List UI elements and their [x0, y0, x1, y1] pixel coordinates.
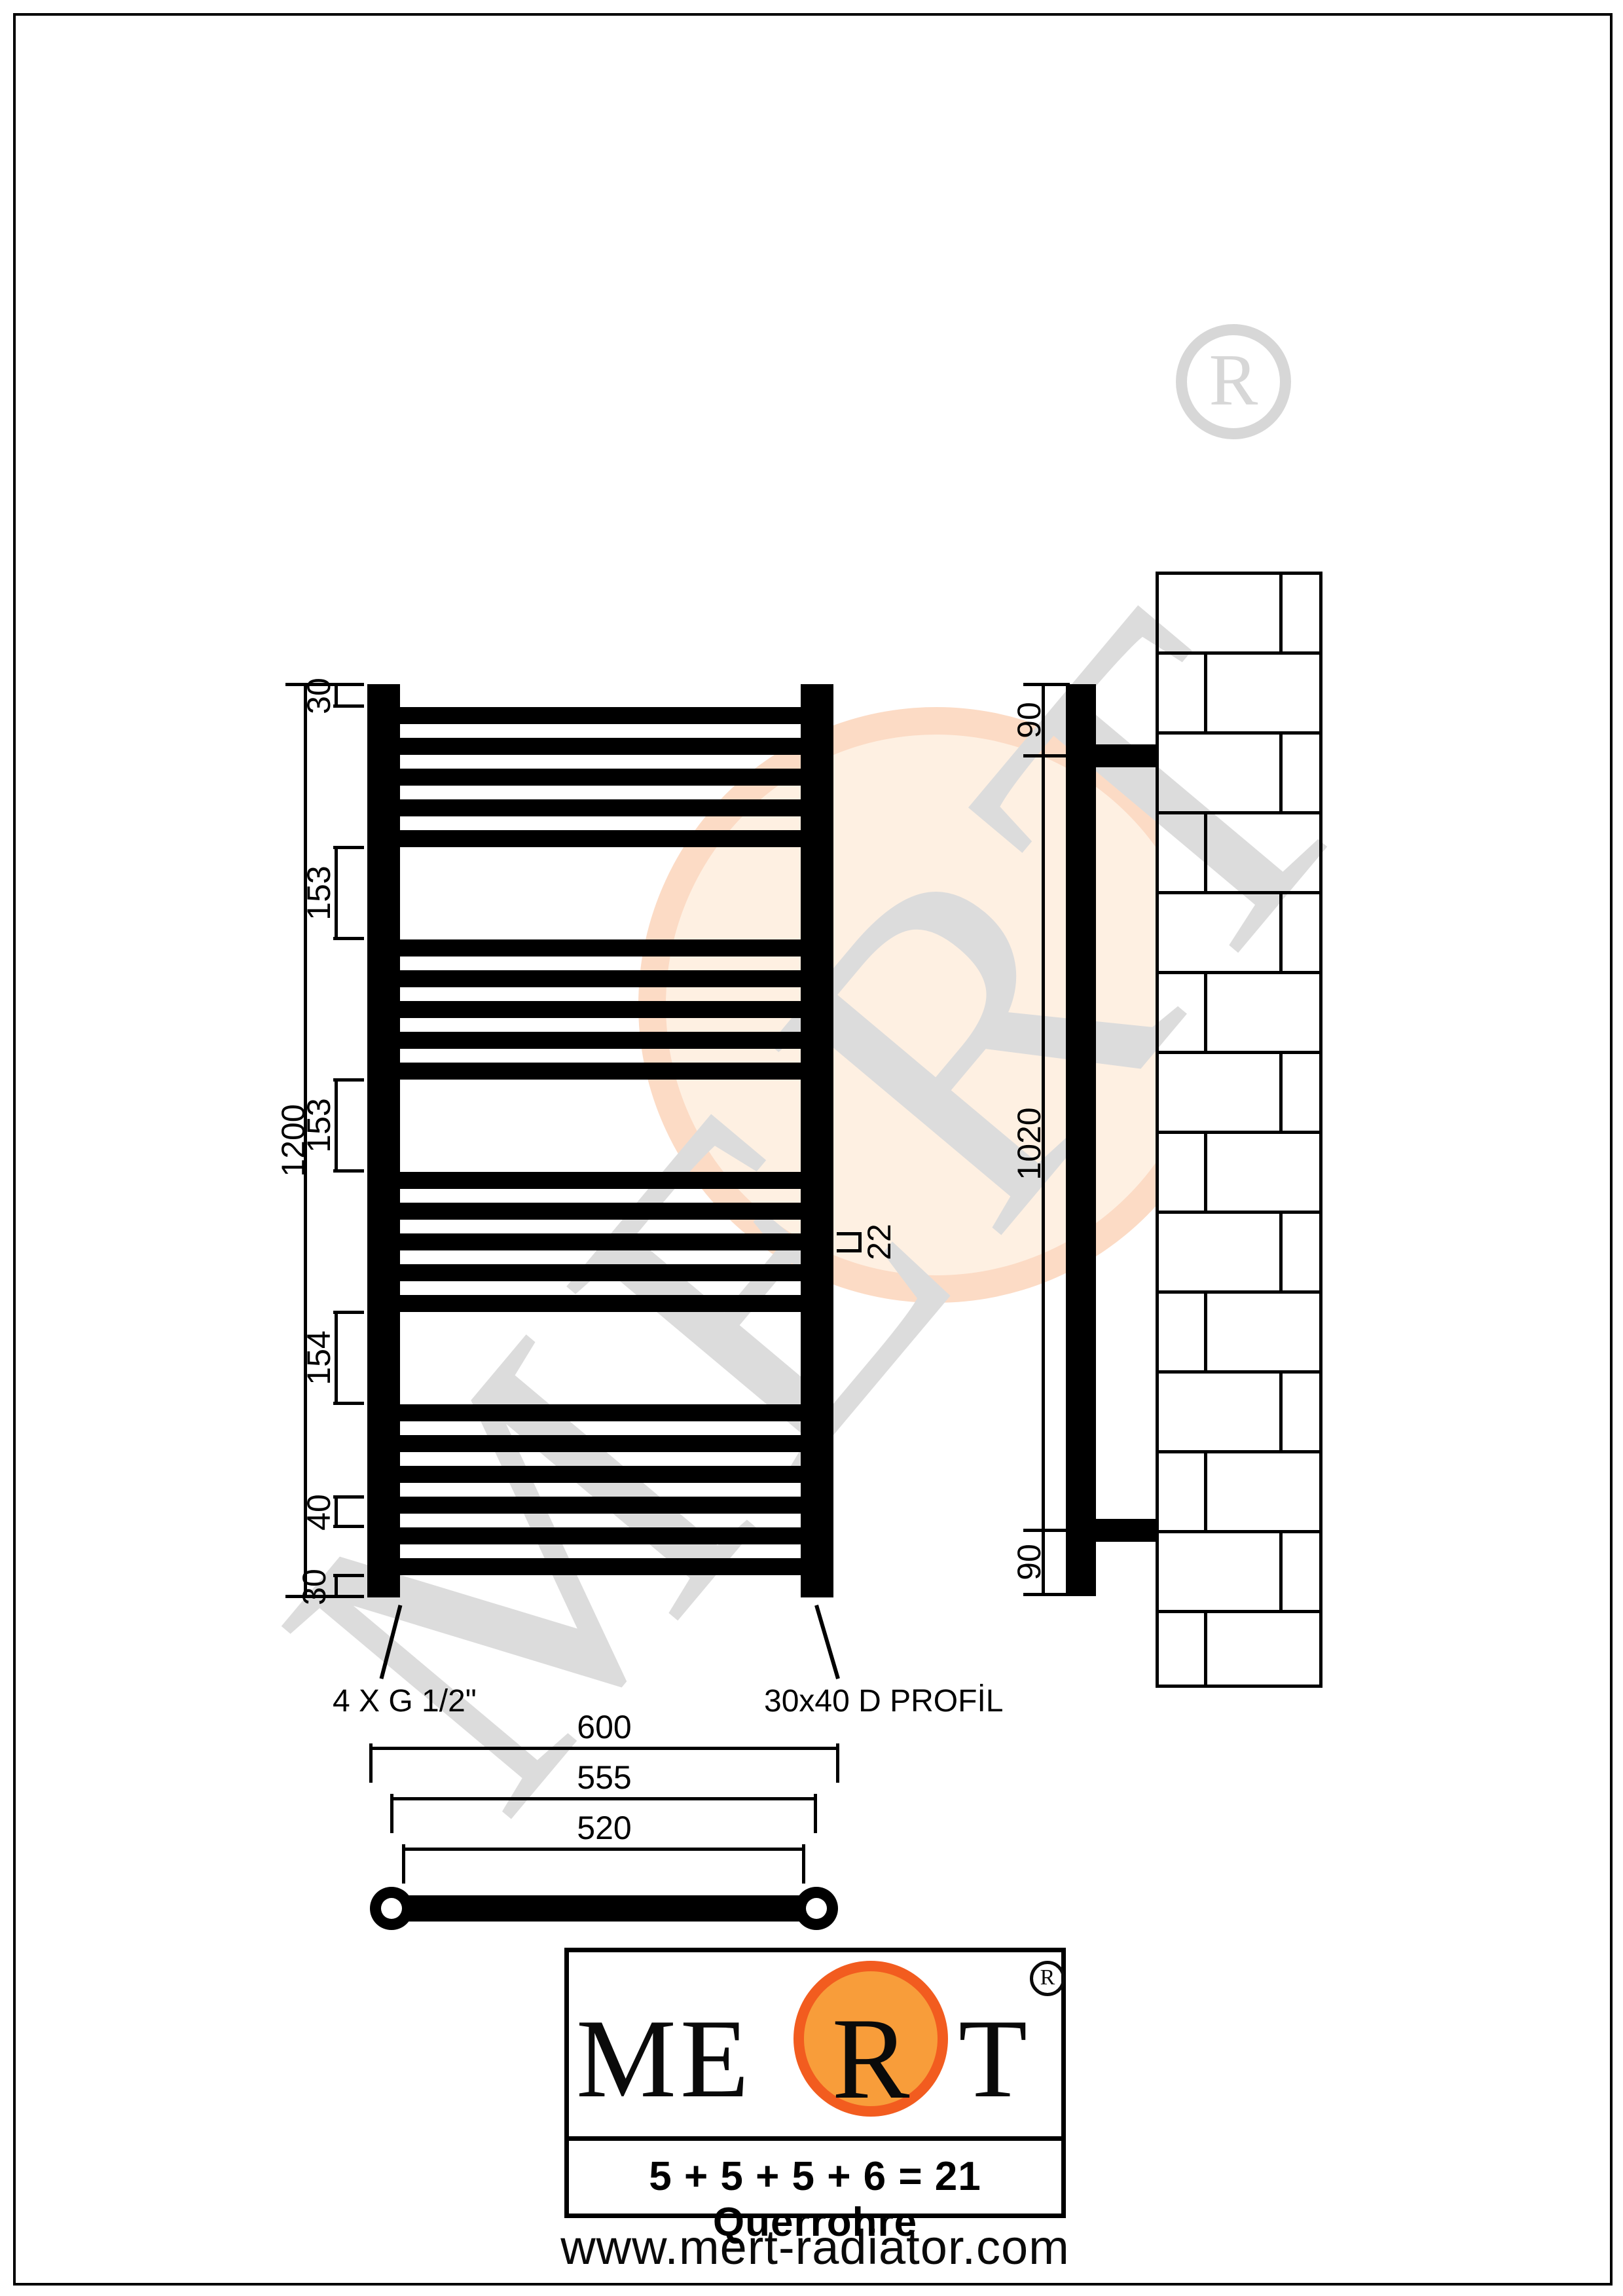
wall-brick-line: [1159, 891, 1319, 894]
radiator-rung: [400, 799, 801, 816]
dim-label-side-top: 90: [1013, 702, 1046, 738]
wall-brick-joint: [1204, 654, 1207, 732]
logo-box-divider: [569, 2136, 1061, 2141]
dim-tick: [802, 1844, 805, 1884]
dim-tick: [333, 1078, 364, 1082]
dim-tick: [390, 1794, 393, 1833]
radiator-rung: [400, 1404, 801, 1421]
wall-brick-joint: [1279, 1373, 1283, 1451]
top-view-left-port: [370, 1887, 413, 1930]
dim-tick: [1023, 1593, 1070, 1596]
radiator-rung: [400, 707, 801, 724]
radiator-rung: [400, 939, 801, 957]
logo-registered-icon: R: [1030, 1961, 1065, 1996]
logo-registered-letter: R: [1040, 1965, 1055, 1990]
wall-brick-line: [1159, 1530, 1319, 1533]
dim-label-tube-thickness: 22: [863, 1224, 896, 1260]
wall-brick-line: [1159, 651, 1319, 655]
radiator-rung: [400, 1001, 801, 1018]
side-top-bracket: [1096, 744, 1156, 767]
dim-tick: [1023, 683, 1070, 686]
connection-annotation: 4 X G 1/2": [333, 1686, 477, 1717]
radiator-rung: [400, 1527, 801, 1544]
wall-brick-joint: [1204, 1133, 1207, 1211]
dim-tick: [836, 1743, 839, 1783]
right-port-hole: [806, 1898, 827, 1919]
wall-brick-line: [1159, 1370, 1319, 1374]
dim-tick: [333, 1402, 364, 1405]
wall-brick-joint: [1204, 1453, 1207, 1531]
radiator-rung: [400, 1435, 801, 1452]
front-left-post: [367, 684, 400, 1597]
dim-label-gap3: 154: [302, 1330, 335, 1385]
wall-brick-line: [1159, 1211, 1319, 1214]
radiator-rung: [400, 1558, 801, 1575]
wall-brick-line: [1159, 1290, 1319, 1294]
dim-label-port-pitch: 555: [577, 1761, 631, 1794]
brick-wall-outline: [1156, 572, 1322, 1688]
wall-brick-joint: [1279, 1213, 1283, 1291]
wall-brick-line: [1159, 1131, 1319, 1134]
radiator-rung: [400, 1497, 801, 1514]
dim-tick: [333, 937, 364, 940]
dim-line-30-bottom: [335, 1575, 338, 1597]
dim-line-600: [369, 1747, 839, 1750]
radiator-rung: [400, 970, 801, 987]
radiator-rung: [400, 1063, 801, 1080]
radiator-rung: [400, 830, 801, 847]
logo-text-me: ME: [576, 2003, 753, 2115]
dim-label-top-offset: 30: [302, 678, 335, 714]
wall-brick-line: [1159, 1450, 1319, 1453]
dim-tick: [369, 1743, 373, 1783]
side-radiator-bar: [1066, 684, 1096, 1596]
logo-text-r: R: [793, 2000, 948, 2117]
radiator-rung: [400, 1233, 801, 1250]
front-right-post: [801, 684, 833, 1597]
dim-label-overall-width: 600: [577, 1711, 631, 1743]
profile-annotation: 30x40 D PROFİL: [764, 1686, 1003, 1717]
dim-label-side-middle: 1020: [1013, 1107, 1046, 1180]
dim-tick: [333, 1525, 364, 1528]
radiator-rung: [400, 738, 801, 755]
dim-tick: [1023, 754, 1070, 757]
wall-brick-joint: [1279, 894, 1283, 972]
radiator-rung: [400, 1264, 801, 1281]
dim-tick: [814, 1794, 817, 1833]
dim-label-gap1: 153: [302, 866, 335, 920]
wall-brick-line: [1159, 971, 1319, 974]
radiator-rung: [400, 1466, 801, 1483]
dim-tick: [402, 1844, 405, 1884]
dim-label-inner-width: 520: [577, 1812, 631, 1844]
wall-brick-joint: [1204, 1293, 1207, 1371]
wall-brick-line: [1159, 1610, 1319, 1613]
side-bottom-bracket: [1096, 1519, 1156, 1542]
top-view-right-port: [795, 1887, 838, 1930]
dim-tick: [333, 1495, 364, 1499]
dim-label-gap2: 153: [302, 1098, 335, 1152]
wall-brick-joint: [1279, 1053, 1283, 1131]
radiator-rung: [400, 1172, 801, 1189]
radiator-rung: [400, 769, 801, 786]
dim-tick: [333, 1169, 364, 1173]
dim-tick: [1023, 1529, 1070, 1532]
radiator-rung: [400, 1203, 801, 1220]
wall-brick-joint: [1279, 574, 1283, 652]
dim-tick: [333, 704, 364, 708]
top-view-tube: [390, 1895, 818, 1922]
left-port-hole: [381, 1898, 402, 1919]
dim-line-520: [403, 1848, 805, 1851]
dim-line-555: [392, 1797, 816, 1800]
wall-brick-joint: [1204, 1613, 1207, 1685]
wall-brick-joint: [1279, 1533, 1283, 1611]
wall-brick-joint: [1279, 734, 1283, 812]
technical-drawing-page: MERT R 1200 30 153 153 154 40 30 22 90 1…: [0, 0, 1623, 2296]
dim-tick: [333, 1311, 364, 1314]
radiator-rung: [400, 1295, 801, 1312]
dim-tick: [333, 846, 364, 849]
wall-brick-line: [1159, 1051, 1319, 1054]
wall-brick-joint: [1204, 814, 1207, 892]
dim-label-side-bottom: 90: [1013, 1544, 1046, 1580]
wall-brick-line: [1159, 731, 1319, 735]
dim-label-pitch: 40: [302, 1494, 335, 1531]
radiator-rung: [400, 1032, 801, 1049]
wall-brick-line: [1159, 811, 1319, 814]
dim-label-bottom-offset: 30: [298, 1569, 331, 1605]
wall-brick-joint: [1204, 974, 1207, 1051]
tube-count-formula: 5 + 5 + 5 + 6 = 21 Querrohre: [564, 2154, 1066, 2200]
dim-tick: [333, 1574, 364, 1577]
logo-text-t: T: [958, 2003, 1027, 2115]
